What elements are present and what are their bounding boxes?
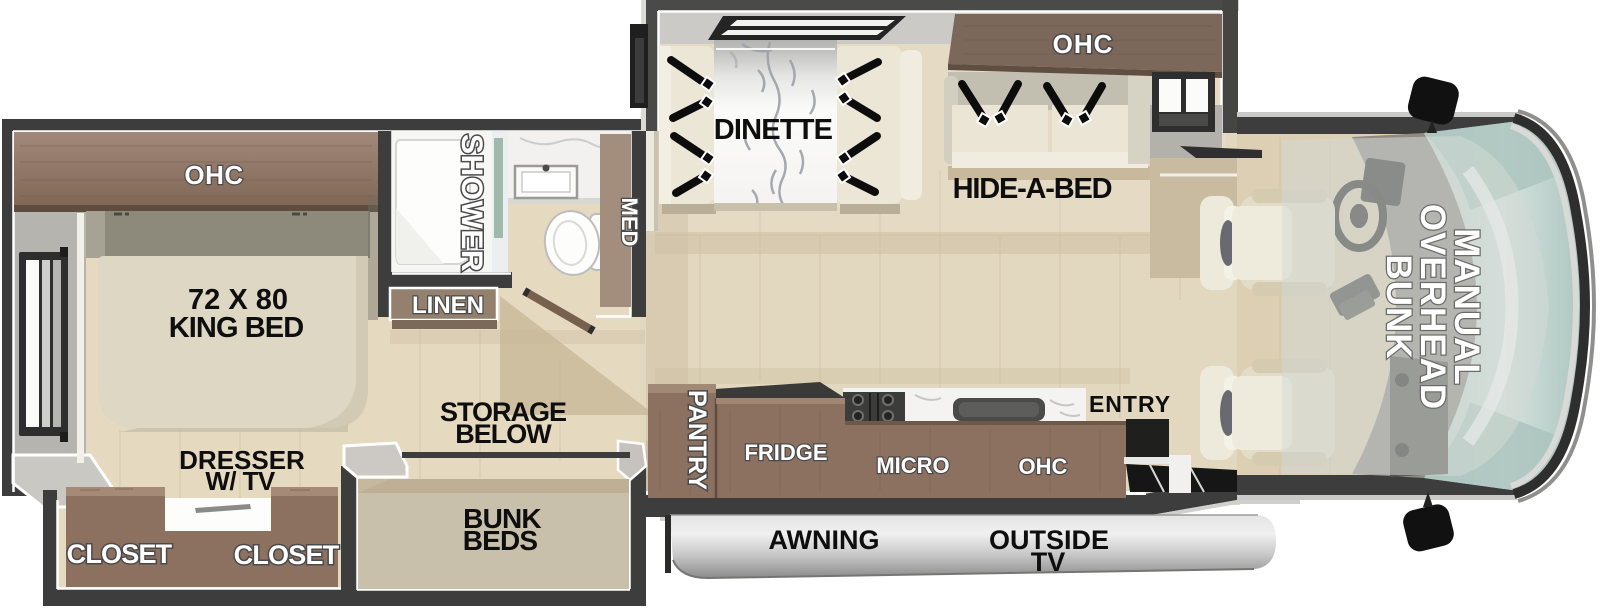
svg-text:PANTRY: PANTRY: [683, 390, 711, 490]
svg-text:MED: MED: [617, 198, 642, 247]
svg-text:HIDE-A-BED: HIDE-A-BED: [953, 173, 1112, 205]
svg-text:FRIDGE: FRIDGE: [744, 440, 827, 465]
svg-text:OHC: OHC: [1053, 29, 1114, 59]
svg-text:LINEN: LINEN: [412, 292, 484, 319]
svg-text:CLOSET: CLOSET: [67, 539, 173, 569]
svg-text:OHC: OHC: [1019, 454, 1068, 479]
svg-text:BEDS: BEDS: [463, 525, 538, 556]
svg-text:MICRO: MICRO: [876, 453, 949, 478]
svg-text:OHC: OHC: [184, 160, 243, 190]
svg-text:ENTRY: ENTRY: [1089, 391, 1171, 417]
svg-text:SHOWER: SHOWER: [455, 134, 488, 272]
svg-text:TV: TV: [1031, 547, 1066, 577]
svg-text:W/ TV: W/ TV: [205, 466, 275, 496]
svg-text:BUNK: BUNK: [1379, 254, 1418, 359]
svg-text:DINETTE: DINETTE: [714, 114, 833, 146]
svg-text:KING BED: KING BED: [169, 312, 304, 344]
svg-text:BELOW: BELOW: [455, 419, 552, 449]
svg-text:AWNING: AWNING: [769, 525, 880, 555]
svg-text:CLOSET: CLOSET: [234, 540, 340, 570]
